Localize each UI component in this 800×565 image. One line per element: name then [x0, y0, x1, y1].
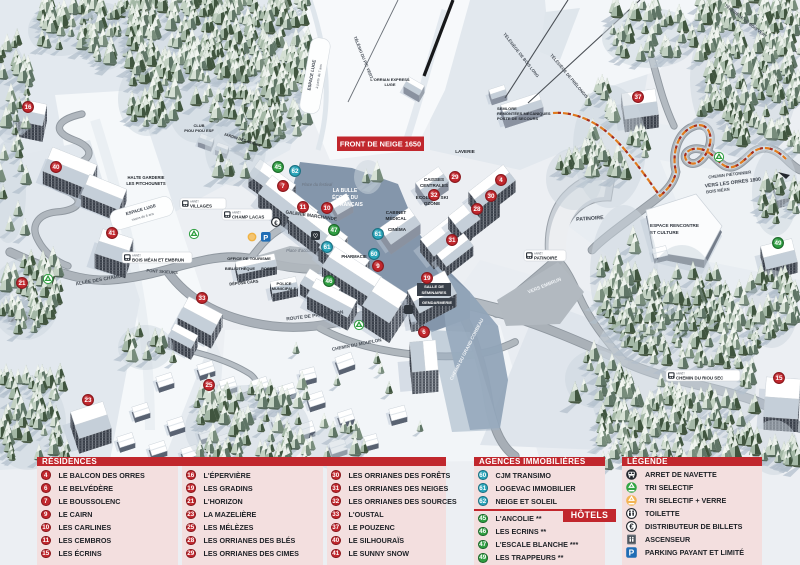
svg-text:28: 28 — [473, 206, 481, 213]
svg-text:PHARMACIE: PHARMACIE — [341, 254, 367, 259]
svg-text:61: 61 — [323, 244, 331, 251]
svg-text:GENDARMERIE: GENDARMERIE — [422, 300, 452, 305]
svg-text:CHEMIN DU RIOU SEC: CHEMIN DU RIOU SEC — [676, 375, 724, 380]
svg-text:HALTE GARDERIE: HALTE GARDERIE — [128, 175, 165, 180]
svg-text:9: 9 — [376, 263, 380, 270]
svg-text:40: 40 — [52, 164, 60, 171]
svg-text:P: P — [629, 547, 635, 557]
svg-text:€: € — [629, 522, 634, 531]
svg-text:ESPACE RENCONTRE: ESPACE RENCONTRE — [650, 223, 699, 228]
svg-text:OZONE: OZONE — [424, 201, 440, 206]
svg-text:Place d'accueil: Place d'accueil — [286, 248, 315, 253]
svg-text:61: 61 — [374, 231, 382, 238]
svg-text:VILLAGES: VILLAGES — [190, 203, 212, 208]
svg-text:BIBLIOTHÈQUE: BIBLIOTHÈQUE — [225, 266, 256, 271]
svg-text:PATINOIRE: PATINOIRE — [534, 255, 557, 260]
svg-text:SÉMINAIRES: SÉMINAIRES — [422, 290, 447, 295]
svg-text:CHAMP LACAS: CHAMP LACAS — [232, 214, 264, 219]
svg-text:11: 11 — [300, 204, 307, 211]
svg-text:Place du festival: Place du festival — [302, 182, 334, 187]
svg-text:ÉCOLE DU: ÉCOLE DU — [332, 193, 358, 201]
svg-text:MÉDICAL: MÉDICAL — [386, 214, 407, 221]
svg-text:LES PITCHOUNETS: LES PITCHOUNETS — [126, 181, 166, 186]
svg-text:25: 25 — [205, 382, 213, 389]
svg-text:21: 21 — [18, 280, 26, 287]
svg-text:CABINET: CABINET — [386, 210, 407, 215]
svg-text:30: 30 — [487, 193, 495, 200]
svg-text:SALLE DE: SALLE DE — [424, 284, 444, 289]
svg-text:32: 32 — [430, 192, 438, 199]
svg-text:37: 37 — [634, 94, 642, 101]
svg-text:47: 47 — [330, 227, 338, 234]
svg-text:P: P — [263, 233, 268, 242]
svg-text:10: 10 — [323, 205, 331, 212]
svg-text:6: 6 — [422, 329, 426, 336]
svg-text:POSTE: POSTE — [261, 266, 275, 271]
svg-text:45: 45 — [274, 164, 282, 171]
svg-text:CINÉMA: CINÉMA — [388, 225, 407, 232]
svg-text:15: 15 — [775, 375, 783, 382]
svg-text:♡: ♡ — [313, 233, 318, 240]
svg-text:29: 29 — [451, 174, 459, 181]
svg-text:4: 4 — [499, 177, 503, 184]
svg-text:BOIS MÉAN ET EMBRUN: BOIS MÉAN ET EMBRUN — [132, 257, 184, 262]
svg-text:FRONT DE NEIGE 1650: FRONT DE NEIGE 1650 — [340, 140, 421, 149]
svg-text:LAVERIE: LAVERIE — [455, 149, 475, 154]
svg-text:POSTE DE SECOURS: POSTE DE SECOURS — [497, 116, 538, 121]
svg-text:41: 41 — [108, 230, 116, 237]
svg-text:62: 62 — [291, 168, 299, 175]
svg-text:LA BULLE: LA BULLE — [333, 188, 358, 194]
svg-text:PIOU PIOU ESF: PIOU PIOU ESF — [184, 128, 214, 133]
svg-text:7: 7 — [281, 183, 285, 190]
svg-text:ET CULTURE: ET CULTURE — [650, 230, 679, 235]
svg-text:€: € — [274, 220, 278, 227]
svg-text:CENTRALES: CENTRALES — [420, 183, 448, 188]
svg-text:23: 23 — [84, 397, 92, 404]
svg-text:OFFICE DE TOURISME: OFFICE DE TOURISME — [227, 256, 271, 261]
svg-text:MUNICIPALE: MUNICIPALE — [272, 286, 297, 291]
svg-text:CAISSES: CAISSES — [424, 177, 444, 182]
svg-text:19: 19 — [423, 275, 431, 282]
svg-text:60: 60 — [370, 251, 378, 258]
svg-text:46: 46 — [325, 278, 333, 285]
svg-text:49: 49 — [774, 240, 782, 247]
svg-text:16: 16 — [24, 104, 32, 111]
svg-text:33: 33 — [198, 295, 206, 302]
svg-text:31: 31 — [448, 237, 456, 244]
svg-text:LUGE: LUGE — [384, 82, 395, 87]
